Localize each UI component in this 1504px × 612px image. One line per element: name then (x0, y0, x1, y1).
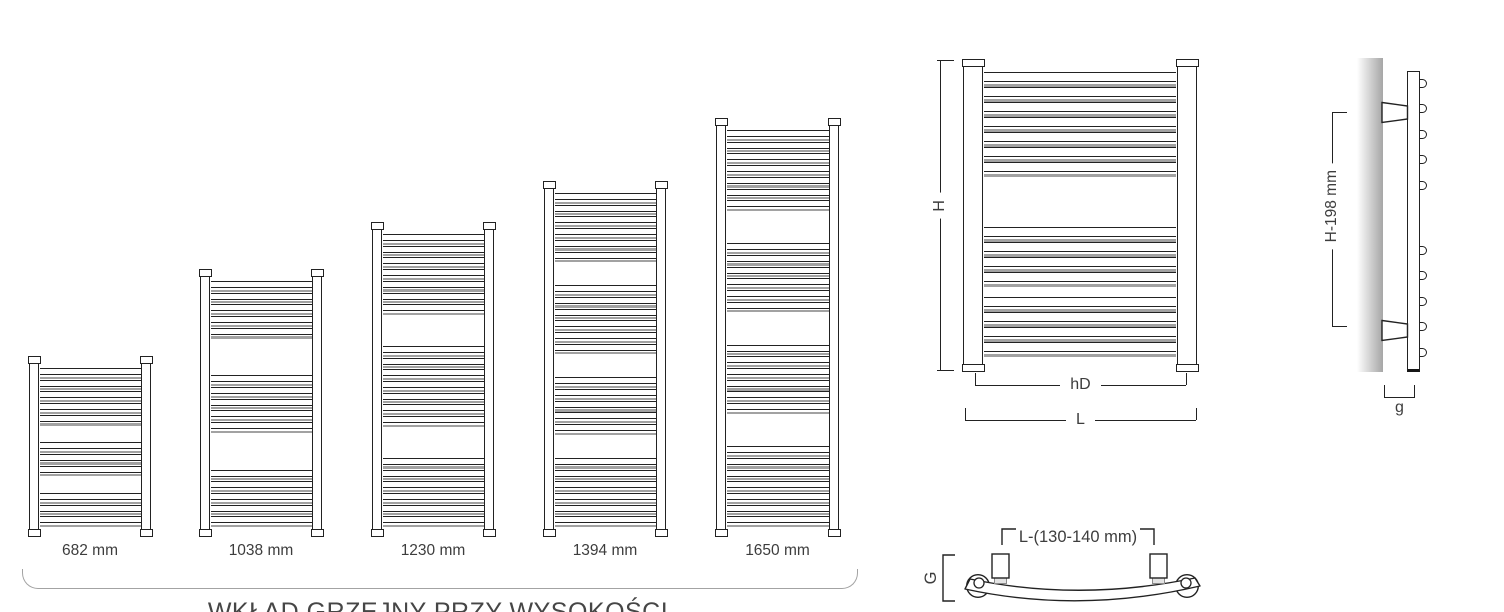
rung (383, 481, 484, 488)
rail-cap (1176, 59, 1199, 67)
rung (555, 458, 656, 465)
rung-shadow (211, 301, 312, 303)
rung (727, 505, 829, 512)
rung (984, 342, 1176, 352)
rung (383, 281, 484, 288)
rail-left (372, 229, 382, 530)
rail-right (656, 188, 666, 530)
rail-right (141, 363, 151, 530)
rung-shadow (383, 390, 484, 392)
rung-shadow (40, 400, 141, 402)
radiator-front-1650: 1650 mm (716, 118, 839, 537)
rail-cap (543, 529, 556, 537)
rung (211, 399, 312, 406)
rung (40, 403, 141, 410)
rung (984, 162, 1176, 172)
dim-label-hd: hD (1060, 376, 1100, 393)
rung (555, 470, 656, 477)
rung-shadow (555, 409, 656, 411)
rung-shadow (383, 301, 484, 303)
radiator-front-1230: 1230 mm (372, 222, 494, 537)
rung (555, 297, 656, 304)
rung (555, 389, 656, 396)
rung (984, 257, 1176, 267)
rung-shadow (383, 366, 484, 368)
rung (555, 412, 656, 419)
rung (211, 304, 312, 311)
rung-shadow (555, 433, 656, 435)
rail-cap (371, 222, 384, 230)
rung (984, 132, 1176, 142)
rung-shadow (211, 513, 312, 515)
dim-label-g: g (1395, 399, 1404, 416)
rung (40, 380, 141, 387)
dim-bracket-G (943, 555, 955, 601)
rung (555, 332, 656, 339)
rung (555, 344, 656, 351)
wall-section (1357, 58, 1383, 372)
rail-cap (655, 529, 668, 537)
dim-label-h198: H-198 mm (1323, 163, 1341, 249)
rung-shadow (383, 413, 484, 415)
radiator-size-label: 1394 mm (524, 542, 686, 560)
rung-shadow (383, 502, 484, 504)
rung-shadow (383, 313, 484, 315)
rung-shadow (383, 490, 484, 492)
rung (383, 381, 484, 388)
rung (555, 493, 656, 500)
rung (984, 312, 1176, 322)
rung (555, 320, 656, 327)
rung (727, 290, 829, 297)
rung-shadow (555, 525, 656, 527)
rail-cap (483, 529, 496, 537)
rung (555, 205, 656, 212)
rung (555, 285, 656, 292)
rail-cap (543, 181, 556, 189)
rail-cap (715, 529, 728, 537)
dim-tick (1186, 373, 1187, 385)
rung-shadow (727, 162, 829, 164)
rail-right (312, 276, 322, 530)
rung (984, 272, 1176, 282)
rung (383, 257, 484, 264)
radiator-size-label: 1650 mm (696, 542, 859, 560)
rung-shadow (40, 525, 141, 527)
rung (555, 252, 656, 259)
rung-shadow (555, 398, 656, 400)
rung (383, 304, 484, 311)
dim-tick (1332, 112, 1347, 113)
rung-shadow (727, 353, 829, 355)
rung-shadow (383, 254, 484, 256)
rail-cap (140, 529, 153, 537)
rung-shadow (40, 377, 141, 379)
rung-shadow (727, 275, 829, 277)
rung (727, 391, 829, 398)
rung (727, 165, 829, 172)
rung-shadow (383, 401, 484, 403)
rung-shadow (727, 299, 829, 301)
rail-right (829, 125, 839, 530)
dim-label-h: H (931, 193, 949, 219)
rung (555, 228, 656, 235)
size-group-brace (22, 569, 858, 589)
rung-shadow (555, 513, 656, 515)
rung (727, 368, 829, 375)
rung-shadow (383, 355, 484, 357)
rung-shadow (40, 513, 141, 515)
rung (984, 147, 1176, 157)
rung-shadow (211, 490, 312, 492)
rung (40, 368, 141, 375)
rung-shadow (211, 478, 312, 480)
rung-shadow (555, 352, 656, 354)
rung-shadow (727, 185, 829, 187)
rung (727, 345, 829, 352)
rail-cap (28, 356, 41, 364)
rung-shadow (555, 466, 656, 468)
rung-shadow (555, 225, 656, 227)
rung-shadow (211, 525, 312, 527)
rung (383, 246, 484, 253)
rung-shadow (727, 174, 829, 176)
wall-bracket-top (1381, 101, 1409, 124)
rung-shadow (555, 478, 656, 480)
rung-shadow (727, 209, 829, 211)
rung (211, 505, 312, 512)
rail-cap (715, 118, 728, 126)
rung (211, 481, 312, 488)
rung-shadow (727, 466, 829, 468)
rung (383, 369, 484, 376)
rung-shadow (727, 525, 829, 527)
rung-shadow (40, 423, 141, 425)
radiator-front-1394: 1394 mm (544, 181, 666, 537)
rung (211, 293, 312, 300)
rung (727, 516, 829, 523)
rung (984, 242, 1176, 252)
rung-shadow (211, 431, 312, 433)
rung-shadow (727, 400, 829, 402)
rail-cap (199, 529, 212, 537)
rung-shadow (727, 377, 829, 379)
rail-cap (371, 529, 384, 537)
rung-shadow (383, 513, 484, 515)
rung-area (984, 59, 1176, 372)
rung-shadow (383, 478, 484, 480)
rung (383, 358, 484, 365)
rung (727, 458, 829, 465)
rung-shadow (211, 325, 312, 327)
rung (383, 416, 484, 423)
rung-shadow (555, 386, 656, 388)
rung-area (555, 181, 656, 537)
rail-cap (483, 222, 496, 230)
rail-left (200, 276, 210, 530)
rail-cap (140, 356, 153, 364)
rung (40, 391, 141, 398)
dim-label-spacing: L-(130-140 mm) (1019, 528, 1137, 546)
rung (727, 278, 829, 285)
rung (727, 356, 829, 363)
rung-shadow (555, 329, 656, 331)
rung (383, 269, 484, 276)
rung-shadow (40, 462, 141, 464)
rung-shadow (40, 388, 141, 390)
rung-shadow (211, 396, 312, 398)
rung (383, 404, 484, 411)
rung-shadow (555, 490, 656, 492)
rung-shadow (211, 313, 312, 315)
rung-area (383, 222, 484, 537)
radiator-size-label: 1230 mm (352, 542, 514, 560)
rung-shadow (727, 365, 829, 367)
front-view-diagram (963, 59, 1197, 372)
rung (40, 442, 141, 449)
rung (727, 470, 829, 477)
rung-shadow (555, 248, 656, 250)
rail-left (963, 66, 983, 365)
rung (211, 493, 312, 500)
rung (984, 327, 1176, 337)
rung-shadow (984, 174, 1176, 177)
rail-cap (1176, 364, 1199, 372)
dim-tick (1002, 529, 1016, 545)
rung (40, 505, 141, 512)
rung (984, 72, 1176, 82)
dim-tick (1332, 326, 1347, 327)
rung-shadow (383, 378, 484, 380)
rung-shadow (211, 384, 312, 386)
rung-area (727, 118, 829, 537)
radiator-dimension-sheet: 682 mm1038 mm1230 mm1394 mm1650 mm WKŁAD… (0, 0, 1504, 612)
rung (984, 297, 1176, 307)
rung (555, 377, 656, 384)
rung-shadow (383, 243, 484, 245)
rung-shadow (555, 502, 656, 504)
rung (727, 142, 829, 149)
rung-shadow (727, 252, 829, 254)
rung (555, 505, 656, 512)
rail-cap (962, 364, 985, 372)
rung-shadow (984, 354, 1176, 357)
rung (727, 403, 829, 410)
rail-cap (828, 118, 841, 126)
rung (211, 328, 312, 335)
rail-cap (199, 269, 212, 277)
rung (727, 177, 829, 184)
rung-area (40, 356, 141, 537)
rung (40, 493, 141, 500)
rail-cap (28, 529, 41, 537)
rung (383, 516, 484, 523)
rung-shadow (383, 425, 484, 427)
rail-right (484, 229, 494, 530)
rung (383, 493, 484, 500)
rung (727, 302, 829, 309)
rung (555, 424, 656, 431)
rung (40, 454, 141, 461)
rung (40, 415, 141, 422)
rung-area (211, 269, 312, 537)
rung-shadow (727, 287, 829, 289)
rail-left (544, 188, 554, 530)
rung-shadow (727, 455, 829, 457)
dim-tick (937, 60, 954, 61)
rung-shadow (727, 490, 829, 492)
top-view-diagram: G L-(130-140 mm) (920, 490, 1250, 612)
rung-shadow (727, 197, 829, 199)
rung-shadow (211, 290, 312, 292)
rung-shadow (555, 213, 656, 215)
rung-shadow (40, 412, 141, 414)
rung (211, 422, 312, 429)
caption-text: WKŁAD GRZEJNY PRZY WYSOKOŚCI (0, 598, 876, 612)
rung (555, 216, 656, 223)
rung-shadow (211, 407, 312, 409)
rung (555, 309, 656, 316)
rail-cap (962, 59, 985, 67)
radiator-front-682: 682 mm (29, 356, 151, 537)
rung (727, 481, 829, 488)
rung (984, 117, 1176, 127)
dim-bracket-g (1384, 385, 1415, 398)
rung (727, 255, 829, 262)
rung-shadow (727, 513, 829, 515)
rung (40, 516, 141, 523)
rung (555, 481, 656, 488)
rung-shadow (727, 502, 829, 504)
radiator-front-1038: 1038 mm (200, 269, 322, 537)
rung-shadow (727, 412, 829, 414)
rung (40, 466, 141, 473)
rung (727, 267, 829, 274)
rung (555, 401, 656, 408)
rung (555, 516, 656, 523)
rung-shadow (211, 419, 312, 421)
rung (383, 293, 484, 300)
rung (555, 193, 656, 200)
rung (727, 153, 829, 160)
rung (383, 470, 484, 477)
rung (383, 393, 484, 400)
rung (211, 410, 312, 417)
rung (555, 240, 656, 247)
rung (211, 281, 312, 288)
rung-shadow (383, 525, 484, 527)
rung-shadow (727, 263, 829, 265)
rung (383, 458, 484, 465)
rail-tube-right (1181, 578, 1191, 588)
rung (727, 243, 829, 250)
rung-shadow (555, 421, 656, 423)
rung-shadow (40, 474, 141, 476)
rung (211, 516, 312, 523)
rung-shadow (555, 260, 656, 262)
rung (727, 189, 829, 196)
rung-shadow (40, 502, 141, 504)
rung-shadow (555, 341, 656, 343)
rung-shadow (383, 466, 484, 468)
rung-shadow (727, 150, 829, 152)
dim-tick (1196, 408, 1197, 420)
rung-shadow (555, 237, 656, 239)
rail-tube-left (974, 578, 984, 588)
rung (727, 446, 829, 453)
radiator-size-label: 682 mm (9, 542, 171, 560)
rung-shadow (984, 284, 1176, 287)
rung-shadow (727, 478, 829, 480)
dim-tick (1140, 529, 1154, 545)
dim-label-l: L (1066, 411, 1095, 428)
rung-shadow (555, 202, 656, 204)
rung (383, 234, 484, 241)
rail-left (29, 363, 39, 530)
rung (383, 505, 484, 512)
rail-cap (311, 529, 324, 537)
rung (211, 375, 312, 382)
rung-shadow (383, 266, 484, 268)
rail-left (716, 125, 726, 530)
rung-shadow (555, 294, 656, 296)
rail-cap (311, 269, 324, 277)
rung (984, 87, 1176, 97)
rung-shadow (555, 317, 656, 319)
rail-right (1177, 66, 1197, 365)
rung (984, 102, 1176, 112)
rung (727, 493, 829, 500)
rung-shadow (211, 336, 312, 338)
rail-cap (828, 529, 841, 537)
rung (727, 380, 829, 387)
rung-shadow (727, 139, 829, 141)
rung (727, 130, 829, 137)
rung (383, 346, 484, 353)
mount-bracket-right (1150, 554, 1167, 578)
rung-shadow (383, 278, 484, 280)
dim-label-G: G (922, 572, 940, 585)
rung-shadow (211, 502, 312, 504)
rung (211, 387, 312, 394)
rung (211, 316, 312, 323)
rung-shadow (727, 388, 829, 390)
radiator-size-label: 1038 mm (180, 542, 342, 560)
dim-tick (937, 370, 954, 371)
rung-shadow (40, 451, 141, 453)
rung (984, 227, 1176, 237)
rung-shadow (555, 305, 656, 307)
wall-bracket-bottom (1381, 319, 1409, 342)
rung-shadow (727, 310, 829, 312)
rung (211, 470, 312, 477)
rung (727, 200, 829, 207)
mount-bracket-left (992, 554, 1009, 578)
rung-shadow (383, 289, 484, 291)
rail-cap (655, 181, 668, 189)
